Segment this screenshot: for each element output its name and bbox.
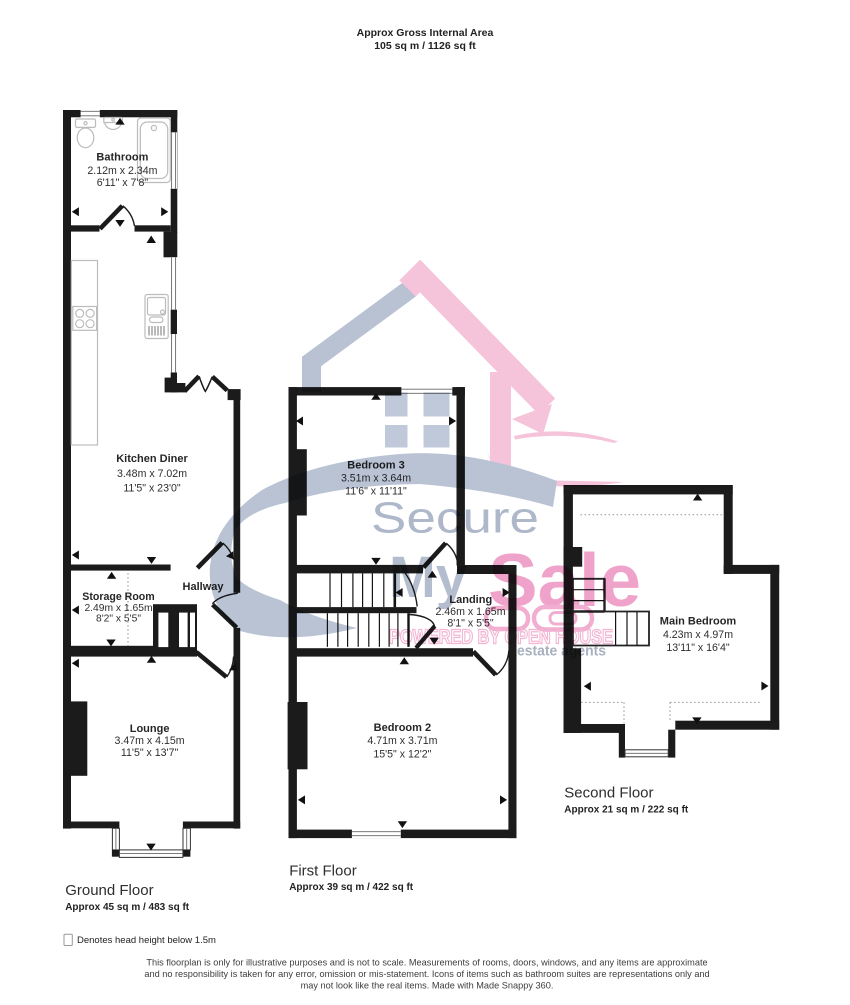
- svg-text:105 sq m / 1126 sq ft: 105 sq m / 1126 sq ft: [374, 40, 476, 52]
- svg-text:13'11" x 16'4": 13'11" x 16'4": [666, 642, 729, 654]
- svg-text:Second Floor: Second Floor: [564, 785, 653, 802]
- svg-text:Ground Floor: Ground Floor: [65, 882, 153, 899]
- svg-text:8'2" x 5'5": 8'2" x 5'5": [96, 613, 141, 624]
- svg-text:Bedroom 2: Bedroom 2: [374, 722, 431, 734]
- svg-text:This floorplan is only for ill: This floorplan is only for illustrative …: [146, 958, 707, 968]
- svg-text:First Floor: First Floor: [289, 862, 357, 879]
- svg-text:3.47m x 4.15m: 3.47m x 4.15m: [115, 735, 185, 747]
- svg-text:2.49m x 1.65m: 2.49m x 1.65m: [84, 603, 152, 614]
- svg-text:4.71m x 3.71m: 4.71m x 3.71m: [367, 735, 437, 747]
- svg-text:estate agents: estate agents: [517, 643, 606, 660]
- svg-text:Approx 21 sq m / 222 sq ft: Approx 21 sq m / 222 sq ft: [564, 804, 689, 815]
- svg-text:Denotes head height below 1.5m: Denotes head height below 1.5m: [77, 935, 216, 946]
- svg-text:4.23m x 4.97m: 4.23m x 4.97m: [663, 629, 733, 641]
- svg-text:Main Bedroom: Main Bedroom: [660, 616, 737, 628]
- svg-text:2.12m x 2.34m: 2.12m x 2.34m: [87, 165, 157, 177]
- svg-text:Approx 39 sq m / 422 sq ft: Approx 39 sq m / 422 sq ft: [289, 882, 414, 893]
- svg-text:Kitchen Diner: Kitchen Diner: [116, 453, 188, 465]
- svg-text:Secure: Secure: [371, 494, 539, 543]
- svg-text:My: My: [389, 545, 467, 610]
- svg-text:Approx 45 sq m / 483 sq ft: Approx 45 sq m / 483 sq ft: [65, 902, 190, 913]
- svg-text:Bathroom: Bathroom: [96, 152, 148, 164]
- svg-text:and no responsibility is taken: and no responsibility is taken for any e…: [144, 969, 709, 979]
- svg-text:6'11" x 7'8": 6'11" x 7'8": [97, 177, 149, 189]
- svg-text:Approx Gross Internal Area: Approx Gross Internal Area: [357, 27, 494, 39]
- svg-text:may not look like the real ite: may not look like the real items. Made w…: [301, 981, 554, 991]
- svg-text:Lounge: Lounge: [130, 723, 170, 735]
- svg-text:3.48m x 7.02m: 3.48m x 7.02m: [117, 468, 187, 480]
- svg-text:Storage Room: Storage Room: [82, 591, 154, 603]
- svg-text:11'5" x 23'0": 11'5" x 23'0": [123, 483, 181, 495]
- svg-text:11'5" x 13'7": 11'5" x 13'7": [121, 747, 179, 759]
- svg-text:15'5" x 12'2": 15'5" x 12'2": [373, 749, 431, 761]
